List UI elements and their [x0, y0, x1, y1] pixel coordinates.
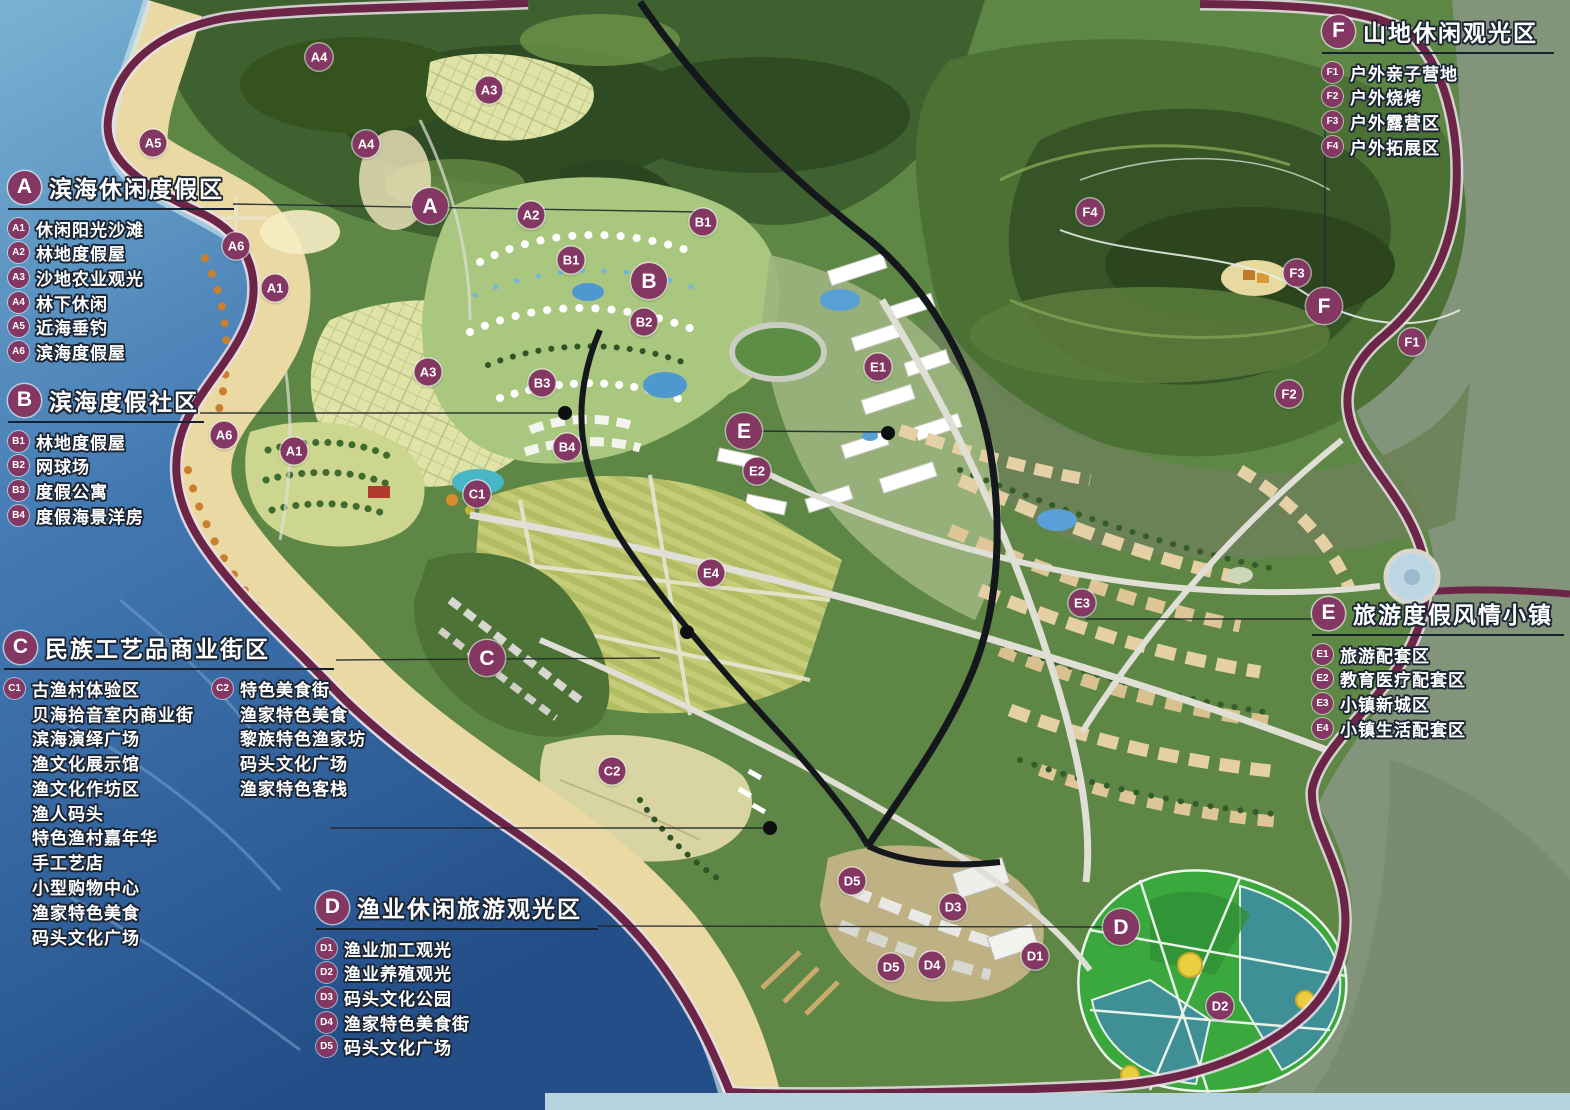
legend-item-e1: E1旅游配套区: [1312, 642, 1564, 667]
legend-a: A滨海休闲度假区A1休闲阳光沙滩A2林地度假屋A3沙地农业观光A4林下休闲A5近…: [8, 170, 234, 364]
legend-title-row: E旅游度假风情小镇: [1312, 596, 1564, 630]
map-marker-a: A: [412, 188, 448, 224]
legend-item-label: 网球场: [36, 453, 90, 478]
legend-item-label: 户外拓展区: [1350, 134, 1440, 159]
map-marker-b4: B4: [554, 434, 581, 461]
legend-zone-badge: A: [8, 171, 41, 204]
legend-item-d5: D5码头文化广场: [316, 1034, 598, 1059]
map-marker-f: F: [1306, 288, 1342, 324]
map-marker-d4: D4: [919, 952, 946, 979]
legend-item-a2: A2林地度假屋: [8, 241, 234, 266]
legend-title-rule: [1312, 634, 1564, 636]
legend-title-row: A滨海休闲度假区: [8, 170, 234, 204]
legend-column-c2: C2特色美食街渔家特色美食黎族特色渔家坊码头文化广场渔家特色客栈: [212, 676, 366, 800]
legend-title-rule: [4, 668, 334, 670]
legend-item-label: 教育医疗配套区: [1340, 666, 1466, 691]
legend-item-badge: A4: [8, 292, 29, 313]
legend-zone-badge: F: [1322, 15, 1355, 48]
legend-subitem: 手工艺店: [4, 849, 194, 874]
map-marker-a4: A4: [306, 44, 333, 71]
legend-item-d1: D1渔业加工观光: [316, 936, 598, 961]
legend-item-badge: A2: [8, 242, 29, 263]
legend-item-label: 休闲阳光沙滩: [36, 216, 144, 241]
legend-item-a4: A4林下休闲: [8, 290, 234, 315]
map-marker-f1: F1: [1399, 329, 1426, 356]
legend-item-badge: D3: [316, 987, 337, 1008]
legend-item-b4: B4度假海景洋房: [8, 503, 204, 528]
map-marker-f3: F3: [1284, 260, 1311, 287]
legend-item-label: 小镇生活配套区: [1340, 716, 1466, 741]
legend-subitem: 渔人码头: [4, 800, 194, 825]
legend-item-badge: B2: [8, 455, 29, 476]
legend-item-badge: D5: [316, 1036, 337, 1057]
legend-title: 山地休闲观光区: [1363, 14, 1538, 48]
legend-item-badge: B1: [8, 431, 29, 452]
legend-column-c1: C1古渔村体验区贝海拾音室内商业街滨海演绎广场渔文化展示馆渔文化作坊区渔人码头特…: [4, 676, 194, 949]
legend-item-badge: A5: [8, 316, 29, 337]
legend-subitem: 码头文化广场: [212, 750, 366, 775]
legend-item-e3: E3小镇新城区: [1312, 691, 1564, 716]
legend-zone-badge: E: [1312, 597, 1345, 630]
legend-item-f4: F4户外拓展区: [1322, 134, 1554, 159]
map-marker-b2: B2: [631, 309, 658, 336]
legend-item-f2: F2户外烧烤: [1322, 85, 1554, 110]
legend-item-badge: A6: [8, 341, 29, 362]
legend-item-c2: C2特色美食街: [212, 676, 366, 701]
legend-item-label: 码头文化广场: [344, 1034, 452, 1059]
map-marker-e: E: [726, 413, 762, 449]
map-marker-a6: A6: [211, 422, 238, 449]
stadium: [732, 325, 824, 379]
legend-subitem: 渔文化展示馆: [4, 750, 194, 775]
legend-item-label: 特色美食街: [240, 676, 330, 701]
legend-title-rule: [8, 208, 234, 210]
legend-item-label: 林地度假屋: [36, 240, 126, 265]
legend-item-badge: F1: [1322, 62, 1343, 83]
legend-subitem: 特色渔村嘉年华: [4, 825, 194, 850]
legend-title: 滨海休闲度假区: [49, 170, 224, 204]
legend-item-badge: E4: [1312, 718, 1333, 739]
legend-item-badge: D1: [316, 938, 337, 959]
legend-zone-badge: D: [316, 891, 349, 924]
legend-item-f3: F3户外露营区: [1322, 109, 1554, 134]
legend-item-e2: E2教育医疗配套区: [1312, 667, 1564, 692]
legend-item-a1: A1休闲阳光沙滩: [8, 216, 234, 241]
legend-zone-badge: C: [4, 631, 37, 664]
map-marker-a5: A5: [140, 130, 167, 157]
legend-item-b3: B3度假公寓: [8, 478, 204, 503]
legend-title-row: B滨海度假社区: [8, 383, 204, 417]
legend-item-label: 渔家特色美食街: [344, 1010, 470, 1035]
legend-title: 旅游度假风情小镇: [1353, 596, 1553, 630]
legend-title-rule: [8, 421, 204, 423]
legend-item-badge: E1: [1312, 644, 1333, 665]
map-marker-b1: B1: [690, 209, 717, 236]
map-marker-c2: C2: [599, 758, 626, 785]
legend-c: C民族工艺品商业街区C1古渔村体验区贝海拾音室内商业街滨海演绎广场渔文化展示馆渔…: [4, 630, 366, 949]
legend-title-row: D渔业休闲旅游观光区: [316, 890, 598, 924]
legend-item-label: 度假公寓: [36, 478, 108, 503]
legend-e: E旅游度假风情小镇E1旅游配套区E2教育医疗配套区E3小镇新城区E4小镇生活配套…: [1312, 596, 1564, 740]
map-marker-c: C: [469, 640, 505, 676]
legend-item-d3: D3码头文化公园: [316, 985, 598, 1010]
legend-subitem: 滨海演绎广场: [4, 725, 194, 750]
legend-item-b2: B2网球场: [8, 454, 204, 479]
legend-item-badge: C1: [4, 678, 25, 699]
town-pond: [1037, 509, 1077, 531]
legend-f: F山地休闲观光区F1户外亲子营地F2户外烧烤F3户外露营区F4户外拓展区: [1322, 14, 1554, 158]
map-marker-d2: D2: [1207, 993, 1234, 1020]
legend-item-d4: D4渔家特色美食街: [316, 1010, 598, 1035]
legend-subitem: 渔家特色美食: [4, 899, 194, 924]
legend-subitem: 渔家特色美食: [212, 701, 366, 726]
legend-title-rule: [1322, 52, 1554, 54]
legend-subitem: 贝海拾音室内商业街: [4, 701, 194, 726]
master-plan-map: ABCDEFA1A1A2A3A3A4A4A5A6A6B1B1B2B3B4C1C2…: [0, 0, 1570, 1110]
legend-title: 滨海度假社区: [49, 383, 199, 417]
legend-item-badge: F4: [1322, 136, 1343, 157]
legend-item-label: 渔业养殖观光: [344, 960, 452, 985]
legend-title: 民族工艺品商业街区: [45, 630, 270, 664]
legend-item-label: 旅游配套区: [1340, 642, 1430, 667]
map-marker-a3: A3: [476, 77, 503, 104]
legend-subitem: 渔家特色客栈: [212, 775, 366, 800]
legend-item-badge: B3: [8, 480, 29, 501]
map-marker-d: D: [1103, 909, 1139, 945]
map-marker-f2: F2: [1276, 381, 1303, 408]
map-marker-b1: B1: [558, 247, 585, 274]
legend-b: B滨海度假社区B1林地度假屋B2网球场B3度假公寓B4度假海景洋房: [8, 383, 204, 527]
legend-item-label: 沙地农业观光: [36, 265, 144, 290]
map-marker-a1: A1: [262, 275, 289, 302]
legend-item-badge: A1: [8, 218, 29, 239]
legend-item-label: 林地度假屋: [36, 429, 126, 454]
legend-item-label: 码头文化公园: [344, 985, 452, 1010]
map-marker-e1: E1: [865, 354, 892, 381]
legend-item-label: 户外亲子营地: [1350, 60, 1458, 85]
legend-title-rule: [316, 928, 598, 930]
map-marker-c1: C1: [464, 481, 491, 508]
map-marker-e2: E2: [744, 458, 771, 485]
legend-columns: C1古渔村体验区贝海拾音室内商业街滨海演绎广场渔文化展示馆渔文化作坊区渔人码头特…: [4, 676, 366, 949]
map-marker-e3: E3: [1069, 590, 1096, 617]
legend-item-f1: F1户外亲子营地: [1322, 60, 1554, 85]
legend-item-badge: E3: [1312, 693, 1333, 714]
legend-subitem: 码头文化广场: [4, 924, 194, 949]
legend-subitem: 黎族特色渔家坊: [212, 725, 366, 750]
legend-item-c1: C1古渔村体验区: [4, 676, 194, 701]
map-marker-d3: D3: [940, 894, 967, 921]
legend-item-label: 度假海景洋房: [36, 503, 144, 528]
legend-item-badge: C2: [212, 678, 233, 699]
map-marker-e4: E4: [698, 560, 725, 587]
legend-item-label: 林下休闲: [36, 290, 108, 315]
legend-item-badge: F2: [1322, 86, 1343, 107]
legend-title: 渔业休闲旅游观光区: [357, 890, 582, 924]
legend-item-badge: E2: [1312, 668, 1333, 689]
legend-item-label: 近海垂钓: [36, 314, 108, 339]
map-marker-a2: A2: [518, 202, 545, 229]
legend-item-a6: A6滨海度假屋: [8, 339, 234, 364]
legend-item-a5: A5近海垂钓: [8, 314, 234, 339]
map-marker-a1: A1: [281, 438, 308, 465]
legend-item-label: 户外烧烤: [1350, 84, 1422, 109]
map-marker-a3: A3: [415, 359, 442, 386]
bottom-shallow-water: [545, 1093, 1570, 1110]
map-marker-d5: D5: [839, 868, 866, 895]
legend-item-e4: E4小镇生活配套区: [1312, 716, 1564, 741]
legend-item-badge: B4: [8, 505, 29, 526]
legend-item-label: 古渔村体验区: [32, 676, 140, 701]
legend-item-badge: D4: [316, 1012, 337, 1033]
legend-zone-badge: B: [8, 384, 41, 417]
map-marker-d1: D1: [1022, 943, 1049, 970]
legend-item-a3: A3沙地农业观光: [8, 265, 234, 290]
legend-item-label: 滨海度假屋: [36, 339, 126, 364]
legend-item-label: 小镇新城区: [1340, 691, 1430, 716]
legend-item-d2: D2渔业养殖观光: [316, 961, 598, 986]
map-marker-b3: B3: [529, 370, 556, 397]
legend-item-label: 渔业加工观光: [344, 936, 452, 961]
legend-subitem: 渔文化作坊区: [4, 775, 194, 800]
legend-subitem: 小型购物中心: [4, 874, 194, 899]
legend-item-badge: A3: [8, 267, 29, 288]
map-marker-a4: A4: [353, 131, 380, 158]
legend-d: D渔业休闲旅游观光区D1渔业加工观光D2渔业养殖观光D3码头文化公园D4渔家特色…: [316, 890, 598, 1059]
map-marker-b: B: [631, 263, 667, 299]
legend-item-label: 户外露营区: [1350, 109, 1440, 134]
legend-item-badge: D2: [316, 962, 337, 983]
legend-item-badge: F3: [1322, 111, 1343, 132]
map-marker-f4: F4: [1077, 199, 1104, 226]
map-marker-d5: D5: [878, 954, 905, 981]
legend-item-b1: B1林地度假屋: [8, 429, 204, 454]
legend-title-row: F山地休闲观光区: [1322, 14, 1554, 48]
legend-title-row: C民族工艺品商业街区: [4, 630, 366, 664]
